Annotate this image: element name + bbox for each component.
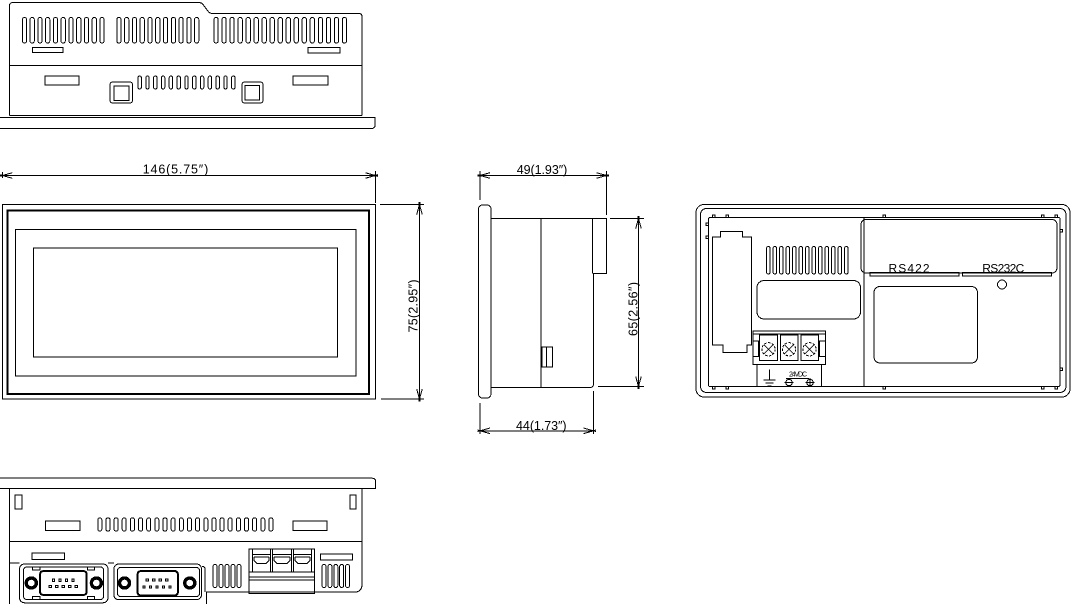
svg-text:RS422: RS422 bbox=[889, 262, 930, 276]
svg-text:24VDC: 24VDC bbox=[789, 372, 807, 379]
svg-text:146(5.75″): 146(5.75″) bbox=[143, 163, 209, 177]
svg-text:75(2.95″): 75(2.95″) bbox=[407, 280, 421, 333]
svg-text:44(1.73″): 44(1.73″) bbox=[516, 419, 567, 433]
svg-text:RS232C: RS232C bbox=[982, 262, 1024, 276]
svg-text:65(2.56″): 65(2.56″) bbox=[626, 282, 640, 336]
svg-text:49(1.93″): 49(1.93″) bbox=[517, 163, 568, 177]
